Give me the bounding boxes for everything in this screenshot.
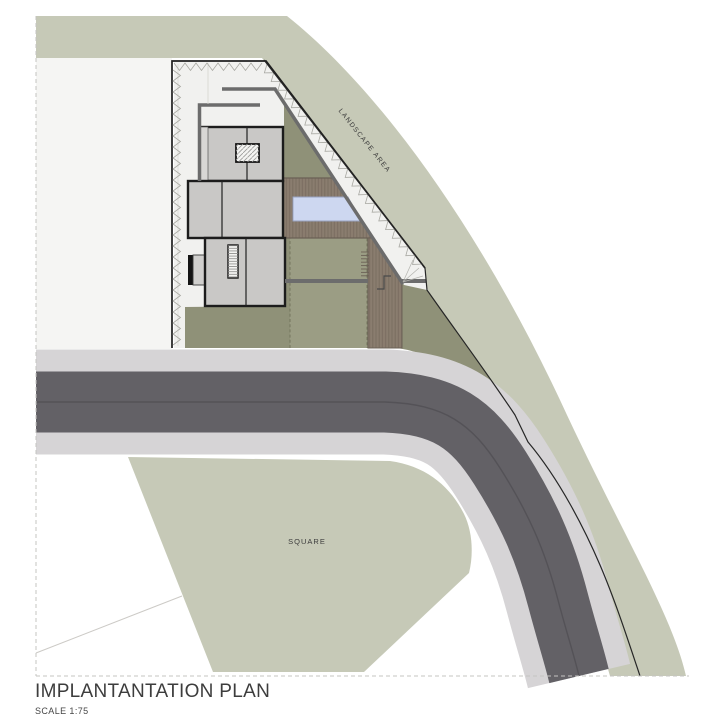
- building-middle-block: [188, 181, 283, 238]
- plan-title: IMPLANTANTATION PLAN: [35, 682, 270, 703]
- building-wing-wall: [188, 255, 193, 285]
- building: [188, 127, 285, 306]
- lawn: [290, 238, 367, 348]
- square-label: SQUARE: [288, 537, 326, 546]
- plan-scale-label: SCALE 1:75: [35, 706, 270, 716]
- title-block: IMPLANTANTATION PLAN SCALE 1:75: [35, 682, 270, 716]
- left-plot: [36, 58, 172, 349]
- building-lower-block: [205, 238, 285, 306]
- site-plan-drawing: LANDSCAPE AREA SQUARE: [0, 0, 720, 720]
- stair-rungs-icon: [228, 245, 238, 278]
- skylight-hatch: [236, 144, 259, 162]
- building-wing: [193, 255, 205, 285]
- site-plan-page: LANDSCAPE AREA SQUARE IMPLANTANTATION PL…: [0, 0, 720, 720]
